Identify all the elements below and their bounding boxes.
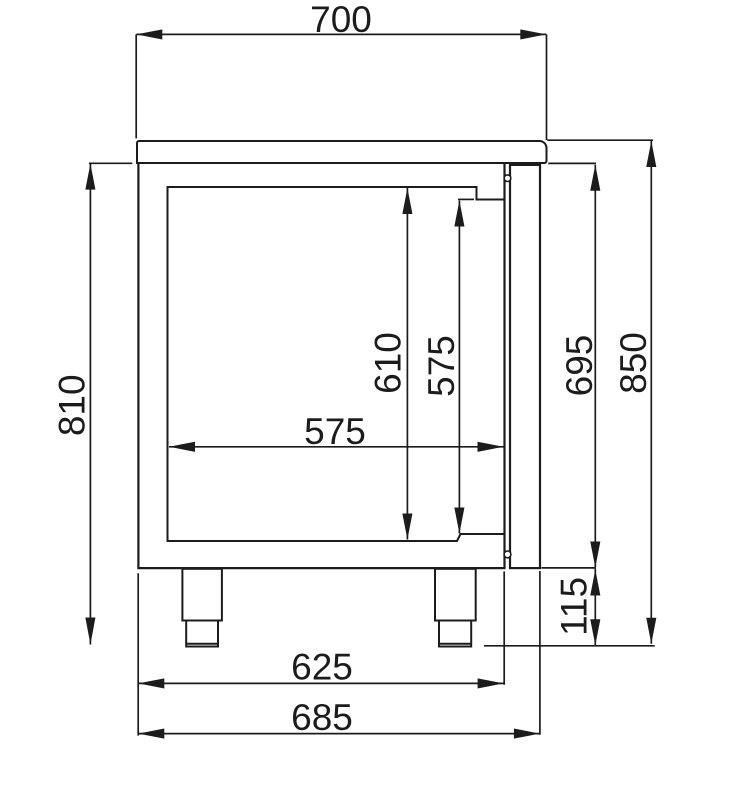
svg-text:115: 115 [554, 577, 595, 636]
svg-text:700: 700 [310, 0, 372, 40]
svg-text:610: 610 [368, 332, 409, 394]
svg-text:695: 695 [559, 335, 600, 397]
svg-text:810: 810 [51, 374, 92, 436]
svg-text:575: 575 [304, 411, 366, 452]
svg-text:575: 575 [421, 335, 462, 397]
svg-text:685: 685 [291, 697, 353, 738]
svg-text:625: 625 [291, 647, 353, 688]
svg-text:850: 850 [613, 332, 654, 394]
